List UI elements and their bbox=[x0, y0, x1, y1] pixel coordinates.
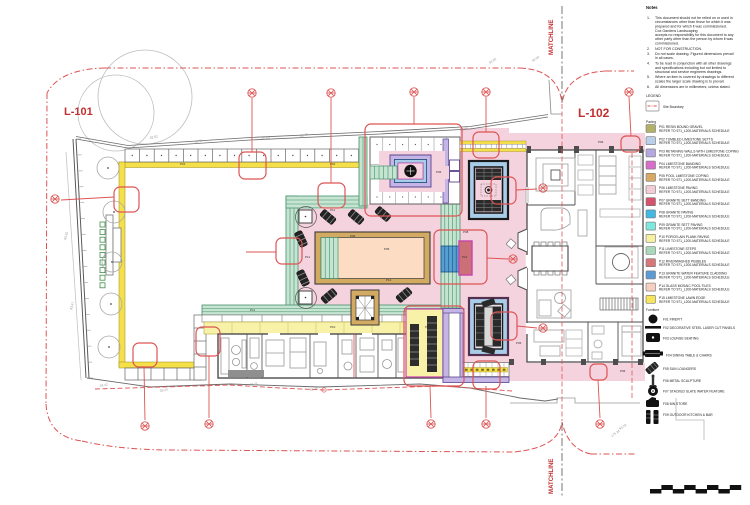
svg-text:1.: 1. bbox=[647, 16, 650, 20]
svg-text:REFER TO 971_L200-MATERIALS SC: REFER TO 971_L200-MATERIALS SCHEDULE bbox=[659, 129, 730, 133]
svg-text:F06 METAL SCULPTURE: F06 METAL SCULPTURE bbox=[663, 379, 702, 383]
svg-text:NOT FOR CONSTRUCTION.: NOT FOR CONSTRUCTION. bbox=[655, 47, 702, 51]
svg-text:REFER TO 971_L200-MATERIALS SC: REFER TO 971_L200-MATERIALS SCHEDULE bbox=[659, 190, 730, 194]
svg-text:Notes: Notes bbox=[646, 5, 658, 10]
svg-text:6.: 6. bbox=[647, 85, 650, 89]
svg-text:P06: P06 bbox=[598, 140, 604, 144]
svg-text:Paving: Paving bbox=[646, 120, 656, 124]
svg-text:REFER TO 971_L200-MATERIALS SC: REFER TO 971_L200-MATERIALS SCHEDULE bbox=[659, 153, 730, 157]
svg-text:REFER TO 971_L200-MATERIALS SC: REFER TO 971_L200-MATERIALS SCHEDULE bbox=[659, 300, 730, 304]
svg-text:F01 FIREPIT: F01 FIREPIT bbox=[663, 318, 682, 322]
svg-text:P11: P11 bbox=[330, 208, 335, 212]
svg-text:REFER TO 971_L200-MATERIALS SC: REFER TO 971_L200-MATERIALS SCHEDULE bbox=[659, 275, 730, 279]
svg-text:scales the larger scale drawin: scales the larger scale drawing is to pr… bbox=[655, 80, 725, 84]
svg-text:P01: P01 bbox=[180, 162, 186, 166]
svg-text:REFER TO 971_L200-MATERIALS SC: REFER TO 971_L200-MATERIALS SCHEDULE bbox=[659, 288, 730, 292]
svg-text:Site Boundary: Site Boundary bbox=[663, 105, 684, 109]
svg-text:P11: P11 bbox=[250, 308, 255, 312]
svg-text:L-102: L-102 bbox=[578, 106, 610, 120]
svg-text:Furniture: Furniture bbox=[646, 308, 659, 312]
svg-text:REFER TO 971_L200-MATERIALS SC: REFER TO 971_L200-MATERIALS SCHEDULE bbox=[659, 214, 730, 218]
svg-text:P11: P11 bbox=[305, 255, 310, 259]
svg-text:REFER TO 971_L200-MATERIALS SC: REFER TO 971_L200-MATERIALS SCHEDULE bbox=[659, 263, 730, 267]
svg-text:in all cases.: in all cases. bbox=[655, 56, 674, 60]
svg-text:P06: P06 bbox=[516, 341, 522, 345]
svg-text:3.: 3. bbox=[647, 52, 650, 56]
svg-text:F09 OUTDOOR KITCHEN & BAR: F09 OUTDOOR KITCHEN & BAR bbox=[663, 413, 713, 417]
svg-text:F07 STACKED SLATE WATER FEATUR: F07 STACKED SLATE WATER FEATURE bbox=[663, 390, 725, 394]
svg-text:REFER TO 971_L200-MATERIALS SC: REFER TO 971_L200-MATERIALS SCHEDULE bbox=[659, 227, 730, 231]
svg-text:F03 LOUNGE SEATING: F03 LOUNGE SEATING bbox=[663, 337, 699, 341]
svg-text:REFER TO 971_L200-MATERIALS SC: REFER TO 971_L200-MATERIALS SCHEDULE bbox=[659, 178, 730, 182]
svg-text:2.: 2. bbox=[647, 47, 650, 51]
svg-text:structural and service enginee: structural and service engineers drawing… bbox=[655, 70, 722, 74]
svg-text:MATCHLINE: MATCHLINE bbox=[548, 459, 555, 494]
svg-text:REFER TO 971_L200-MATERIALS SC: REFER TO 971_L200-MATERIALS SCHEDULE bbox=[659, 239, 730, 243]
svg-text:LEGEND: LEGEND bbox=[646, 94, 661, 98]
svg-text:commissioned.: commissioned. bbox=[655, 42, 679, 46]
svg-text:F04 DINING TABLE & CHAIRS: F04 DINING TABLE & CHAIRS bbox=[666, 354, 712, 358]
svg-text:MATCHLINE: MATCHLINE bbox=[548, 20, 555, 55]
svg-text:P14: P14 bbox=[386, 278, 392, 282]
svg-text:4.: 4. bbox=[647, 62, 650, 66]
svg-text:L-101: L-101 bbox=[64, 106, 93, 118]
svg-text:P12: P12 bbox=[462, 255, 468, 259]
svg-text:P06: P06 bbox=[384, 247, 390, 251]
svg-text:F02 DECORATIVE STEEL LASER CUT: F02 DECORATIVE STEEL LASER CUT PANELS bbox=[663, 326, 736, 330]
svg-text:F08 BIN STORE: F08 BIN STORE bbox=[663, 402, 688, 406]
svg-text:P10: P10 bbox=[330, 325, 336, 329]
svg-text:5.: 5. bbox=[647, 75, 650, 79]
svg-text:All dimensions are in millimet: All dimensions are in millimeters, unles… bbox=[655, 85, 731, 89]
svg-text:P06: P06 bbox=[436, 170, 442, 174]
svg-text:P10: P10 bbox=[425, 325, 431, 329]
svg-text:REFER TO 971_L200-MATERIALS SC: REFER TO 971_L200-MATERIALS SCHEDULE bbox=[659, 141, 730, 145]
svg-text:F05 SUN LOUNGERS: F05 SUN LOUNGERS bbox=[663, 367, 697, 371]
svg-text:P06: P06 bbox=[620, 369, 626, 373]
svg-text:P05: P05 bbox=[350, 234, 356, 238]
svg-text:REFER TO 971_L200-MATERIALS SC: REFER TO 971_L200-MATERIALS SCHEDULE bbox=[659, 251, 730, 255]
svg-text:REFER TO 971_L200-MATERIALS SC: REFER TO 971_L200-MATERIALS SCHEDULE bbox=[659, 166, 730, 170]
svg-text:REFER TO 971_L200-MATERIALS SC: REFER TO 971_L200-MATERIALS SCHEDULE bbox=[659, 202, 730, 206]
